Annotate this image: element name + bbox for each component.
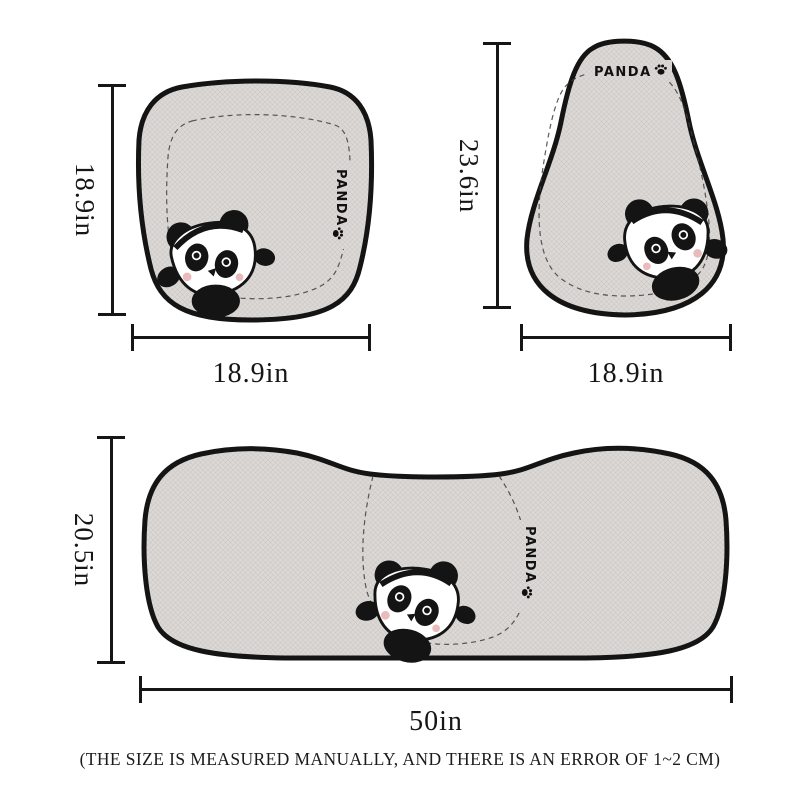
dimension-cap	[729, 324, 732, 351]
brand-label-backrest: PANDA	[594, 65, 652, 80]
front-cushion-height-label: 18.9in	[68, 125, 102, 275]
dimension-bar	[520, 336, 732, 339]
front-seat-cushion-shape: PANDA	[130, 77, 380, 329]
dimension-cap	[97, 661, 125, 664]
front-cushion-width-label: 18.9in	[151, 356, 351, 392]
dimension-bar	[139, 688, 733, 691]
bench-width-line	[139, 676, 733, 703]
backrest-height-line	[483, 42, 511, 309]
brand-label-bench: PANDA	[522, 526, 537, 584]
dimension-cap	[368, 324, 371, 351]
bench-width-label: 50in	[336, 704, 536, 740]
brand-label-front: PANDA	[333, 169, 348, 227]
dimension-cap	[98, 84, 126, 87]
dimension-cap	[131, 324, 134, 351]
size-disclaimer-note: (THE SIZE IS MEASURED MANUALLY, AND THER…	[0, 749, 800, 770]
bench-height-line	[97, 436, 125, 664]
backrest-width-label: 18.9in	[526, 356, 726, 392]
backrest-width-line	[520, 324, 732, 351]
product-size-diagram: PANDA PANDA PANDA	[0, 0, 800, 800]
dimension-cap	[97, 436, 125, 439]
dimension-cap	[730, 676, 733, 703]
dimension-cap	[483, 306, 511, 309]
dimension-cap	[520, 324, 523, 351]
front-cushion-height-line	[98, 84, 126, 316]
dimension-bar	[111, 84, 114, 316]
dimension-bar	[496, 42, 499, 309]
dimension-cap	[483, 42, 511, 45]
backrest-shape: PANDA	[514, 34, 736, 322]
dimension-bar	[110, 436, 113, 664]
rear-bench-shape: PANDA	[133, 430, 738, 665]
dimension-bar	[131, 336, 371, 339]
dimension-cap	[139, 676, 142, 703]
dimension-cap	[98, 313, 126, 316]
front-cushion-width-line	[131, 324, 371, 351]
backrest-height-label: 23.6in	[452, 101, 486, 251]
bench-height-label: 20.5in	[67, 475, 101, 625]
